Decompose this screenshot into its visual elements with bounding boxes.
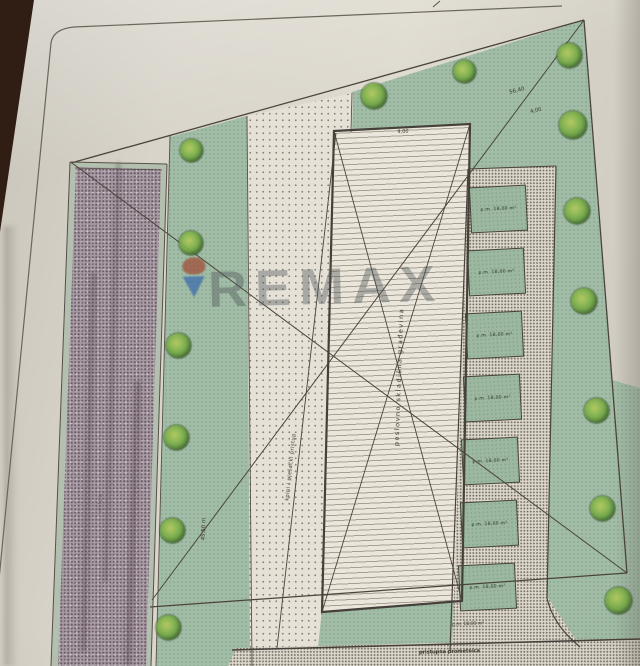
tree-icon bbox=[180, 139, 203, 162]
site-plan-photo: p.m. 18,00 m²p.m. 18,00 m²p.m. 18,00 m²p… bbox=[0, 0, 640, 666]
tree-icon bbox=[361, 83, 387, 109]
tree-icon bbox=[453, 60, 476, 83]
tree-icon bbox=[584, 398, 609, 423]
tree-icon bbox=[160, 518, 185, 543]
tree-icon bbox=[559, 111, 587, 139]
tree-icon bbox=[166, 333, 191, 358]
tree-icon bbox=[605, 587, 632, 614]
tree-icon bbox=[156, 615, 181, 640]
tree-icon bbox=[164, 425, 189, 450]
tree-icon bbox=[179, 231, 203, 255]
tree-icon bbox=[564, 198, 590, 224]
tree-icon bbox=[590, 496, 615, 521]
tree-icon bbox=[571, 288, 597, 314]
tree-icon bbox=[557, 43, 582, 68]
trees bbox=[0, 0, 640, 666]
